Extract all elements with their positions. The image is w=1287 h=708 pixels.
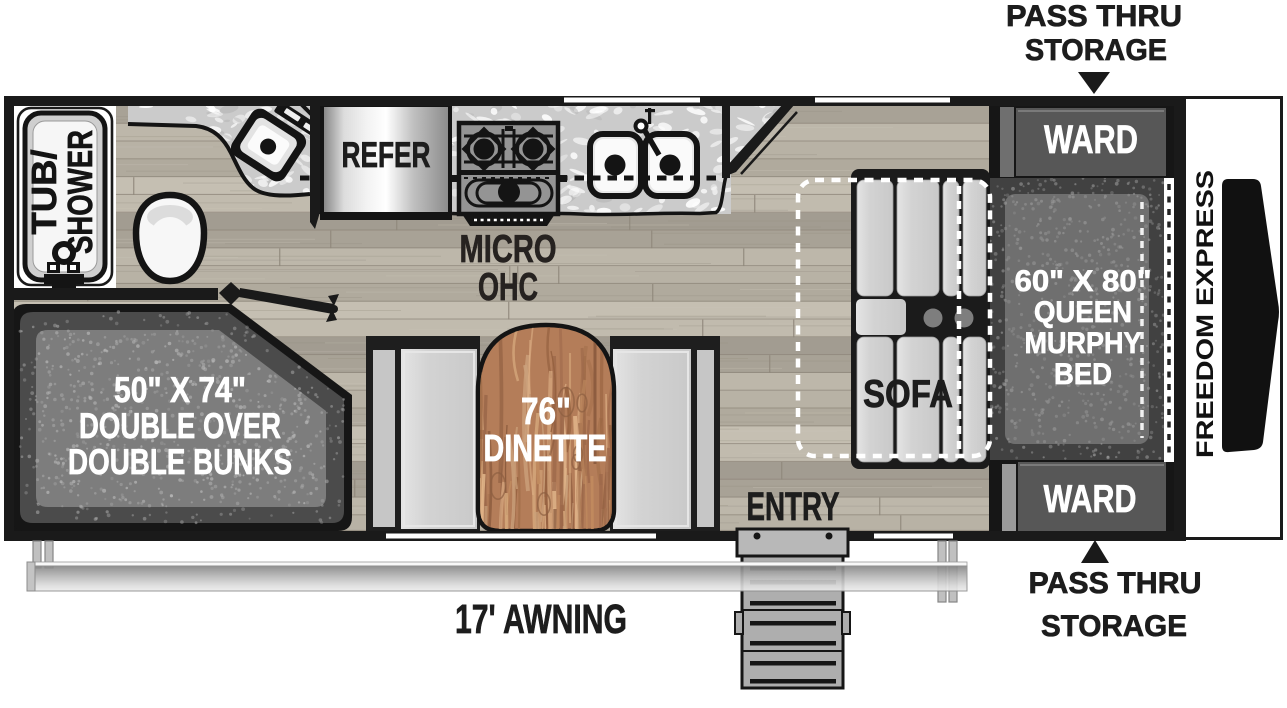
svg-text:MURPHY: MURPHY xyxy=(1025,327,1142,360)
svg-text:FREEDOM EXPRESS: FREEDOM EXPRESS xyxy=(1192,170,1219,458)
svg-text:PASS THRU: PASS THRU xyxy=(1006,0,1182,33)
svg-text:STORAGE: STORAGE xyxy=(1041,610,1187,643)
svg-text:WARD: WARD xyxy=(1044,478,1137,521)
svg-text:REFER: REFER xyxy=(342,134,431,175)
svg-text:DINETTE: DINETTE xyxy=(484,428,607,470)
svg-text:BED: BED xyxy=(1054,358,1112,391)
svg-text:MICRO: MICRO xyxy=(460,228,557,271)
svg-text:17' AWNING: 17' AWNING xyxy=(455,596,627,642)
svg-text:SOFA: SOFA xyxy=(863,373,953,416)
svg-text:DOUBLE OVER: DOUBLE OVER xyxy=(79,405,281,446)
svg-text:OHC: OHC xyxy=(478,266,538,309)
svg-text:WARD: WARD xyxy=(1044,118,1138,162)
svg-text:50" X 74": 50" X 74" xyxy=(114,369,246,410)
svg-text:QUEEN: QUEEN xyxy=(1034,296,1132,329)
svg-text:60" X 80": 60" X 80" xyxy=(1015,265,1152,298)
svg-text:PASS THRU: PASS THRU xyxy=(1029,567,1202,600)
svg-text:SHOWER: SHOWER xyxy=(61,130,100,254)
svg-text:ENTRY: ENTRY xyxy=(747,485,840,529)
svg-text:TUB/: TUB/ xyxy=(25,149,64,234)
svg-text:76": 76" xyxy=(521,391,571,433)
svg-text:STORAGE: STORAGE xyxy=(1025,34,1167,67)
svg-text:DOUBLE BUNKS: DOUBLE BUNKS xyxy=(68,441,292,482)
